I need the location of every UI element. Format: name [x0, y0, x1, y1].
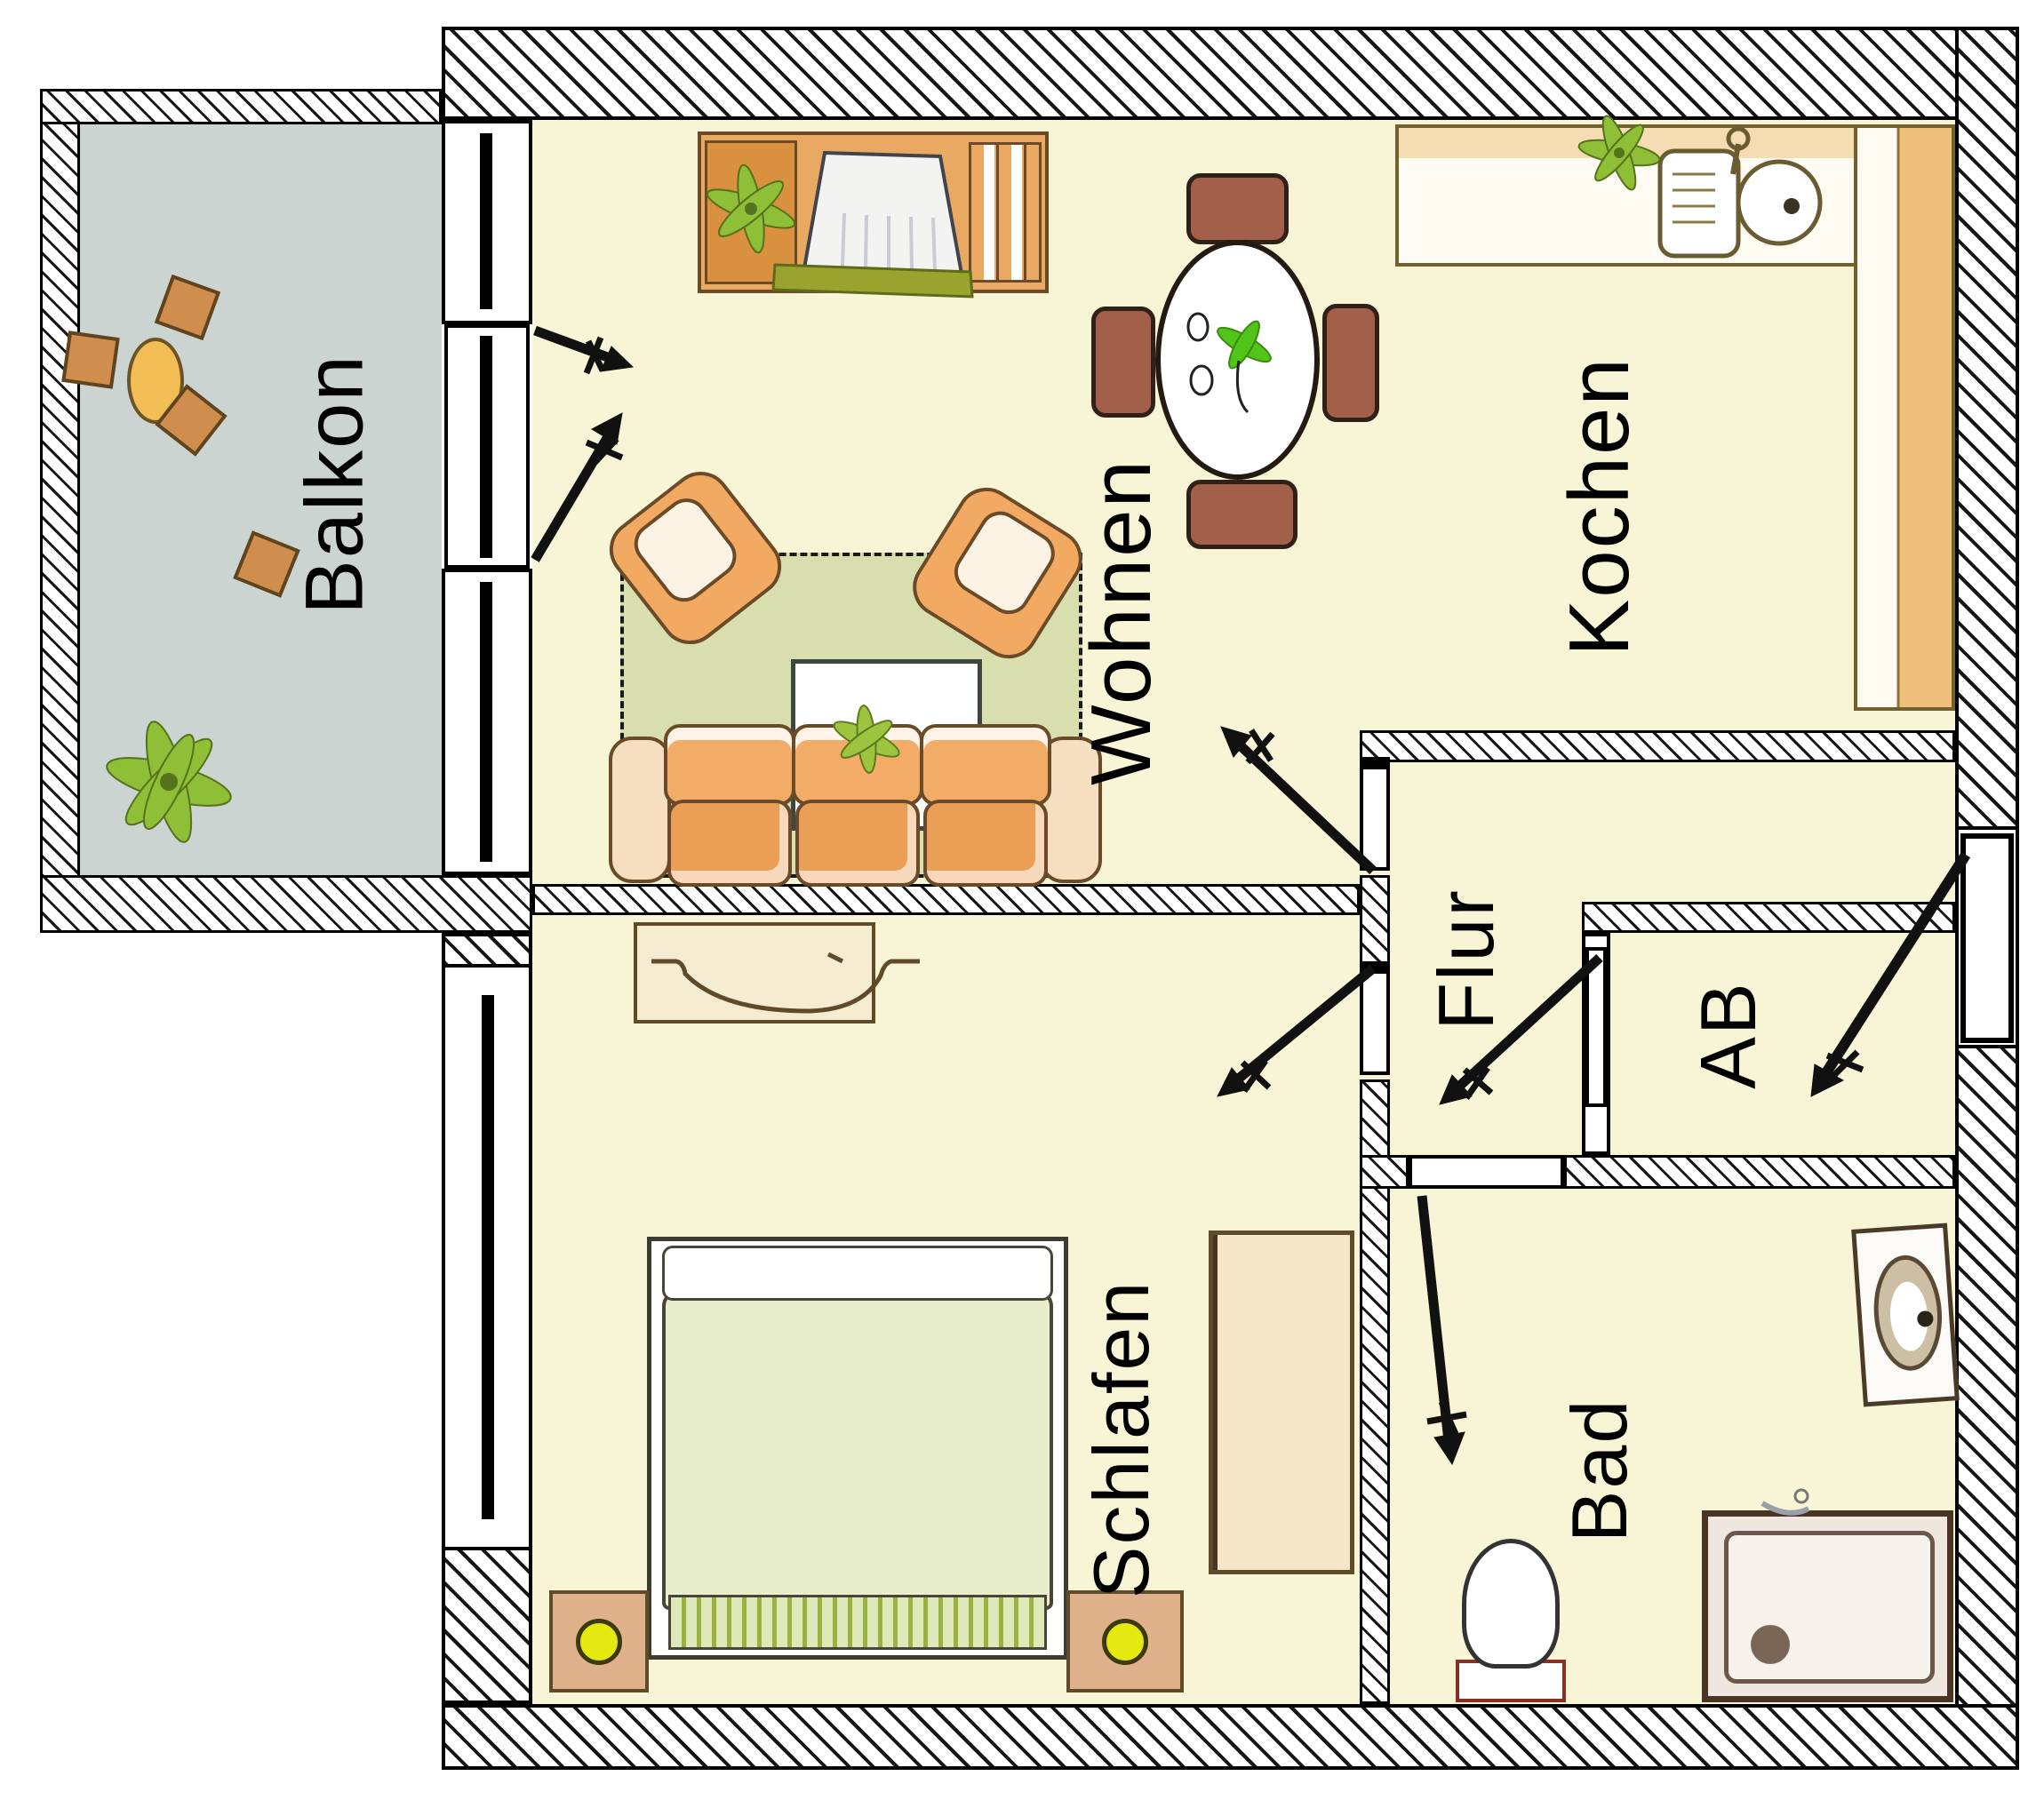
floor-plan: Balkon Wohnen Kochen Flur AB Schlafen Ba… [0, 0, 2044, 1800]
room-label-balkon: Balkon [289, 354, 382, 614]
kitchen-sink [1660, 129, 1820, 256]
tv [773, 153, 972, 297]
room-label-wohnen: Wohnen [1073, 458, 1170, 785]
room-label-kochen: Kochen [1551, 356, 1649, 657]
dresser-drawer [651, 954, 920, 1011]
room-label-schlafen: Schlafen [1076, 1280, 1167, 1598]
door-swing-arrow [535, 413, 622, 560]
door-swing-arrow [1811, 855, 1966, 1096]
balcony-plant [102, 718, 235, 847]
dining-table-plant [1188, 314, 1274, 412]
room-label-bad: Bad [1554, 1398, 1645, 1543]
counter-plant [1577, 113, 1662, 193]
door-swing-arrow [1422, 1196, 1466, 1464]
room-label-flur: Flur [1421, 888, 1512, 1031]
plan-overlay [0, 0, 2044, 1800]
room-label-ab: AB [1683, 981, 1774, 1088]
sideboard-plant [704, 163, 799, 255]
door-swing-arrow [535, 331, 633, 373]
door-swing-arrow [1221, 727, 1373, 871]
door-swing-arrows [535, 331, 1966, 1464]
door-swing-arrow [1218, 968, 1373, 1096]
